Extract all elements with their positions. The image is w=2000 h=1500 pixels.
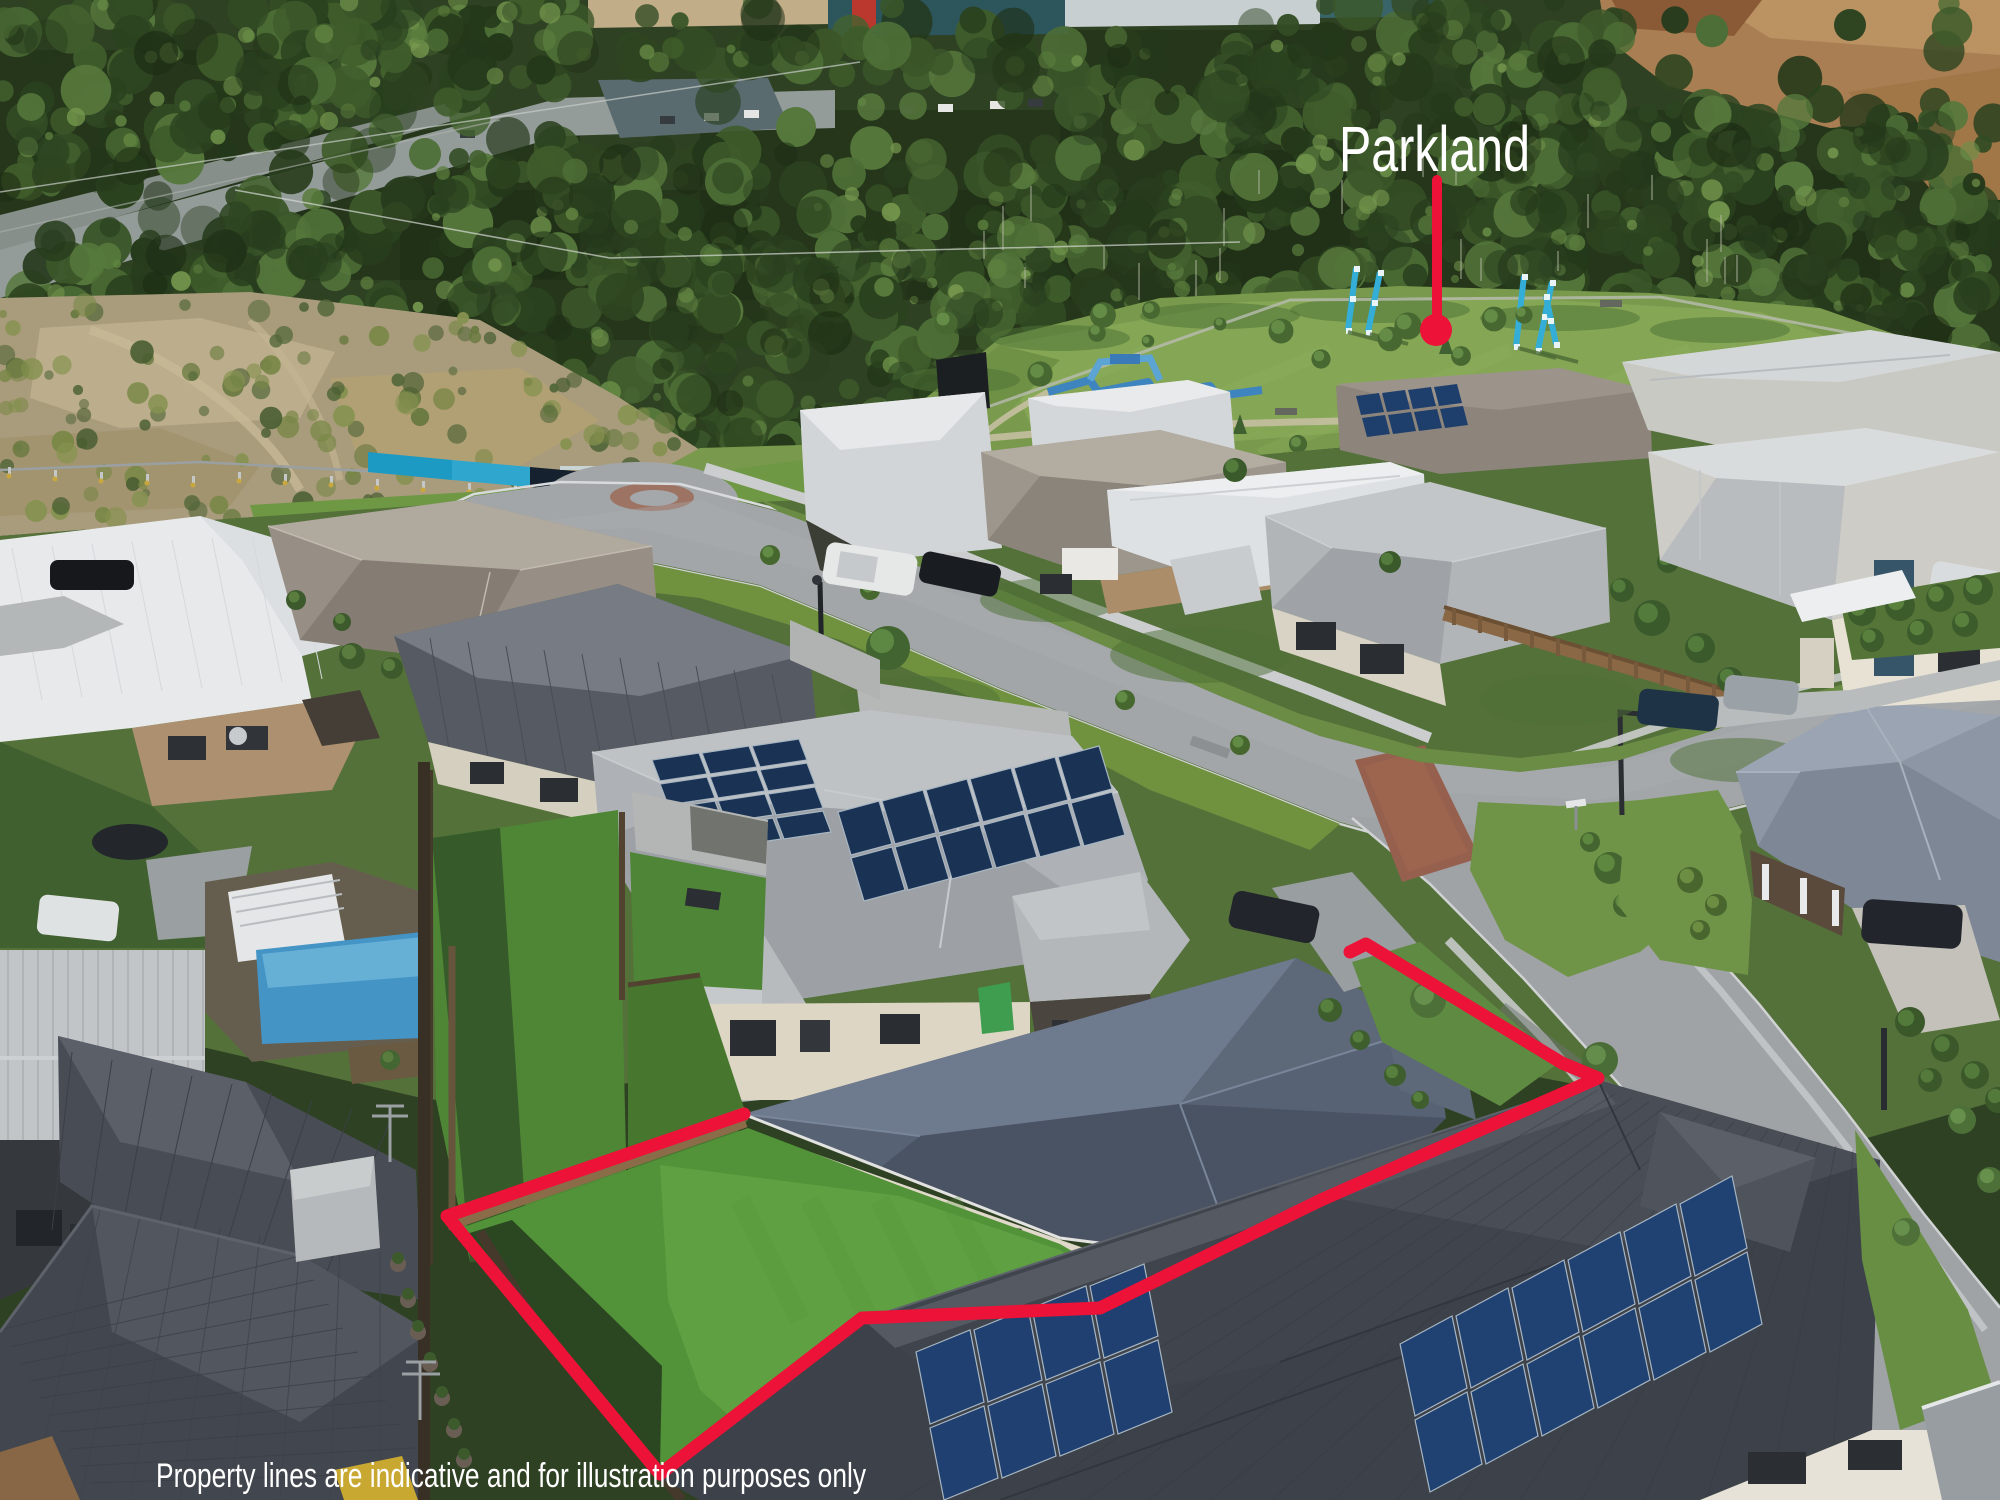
svg-text:Property lines are indicative: Property lines are indicative and for il… xyxy=(156,1457,866,1495)
svg-text:Parkland: Parkland xyxy=(1339,113,1530,185)
